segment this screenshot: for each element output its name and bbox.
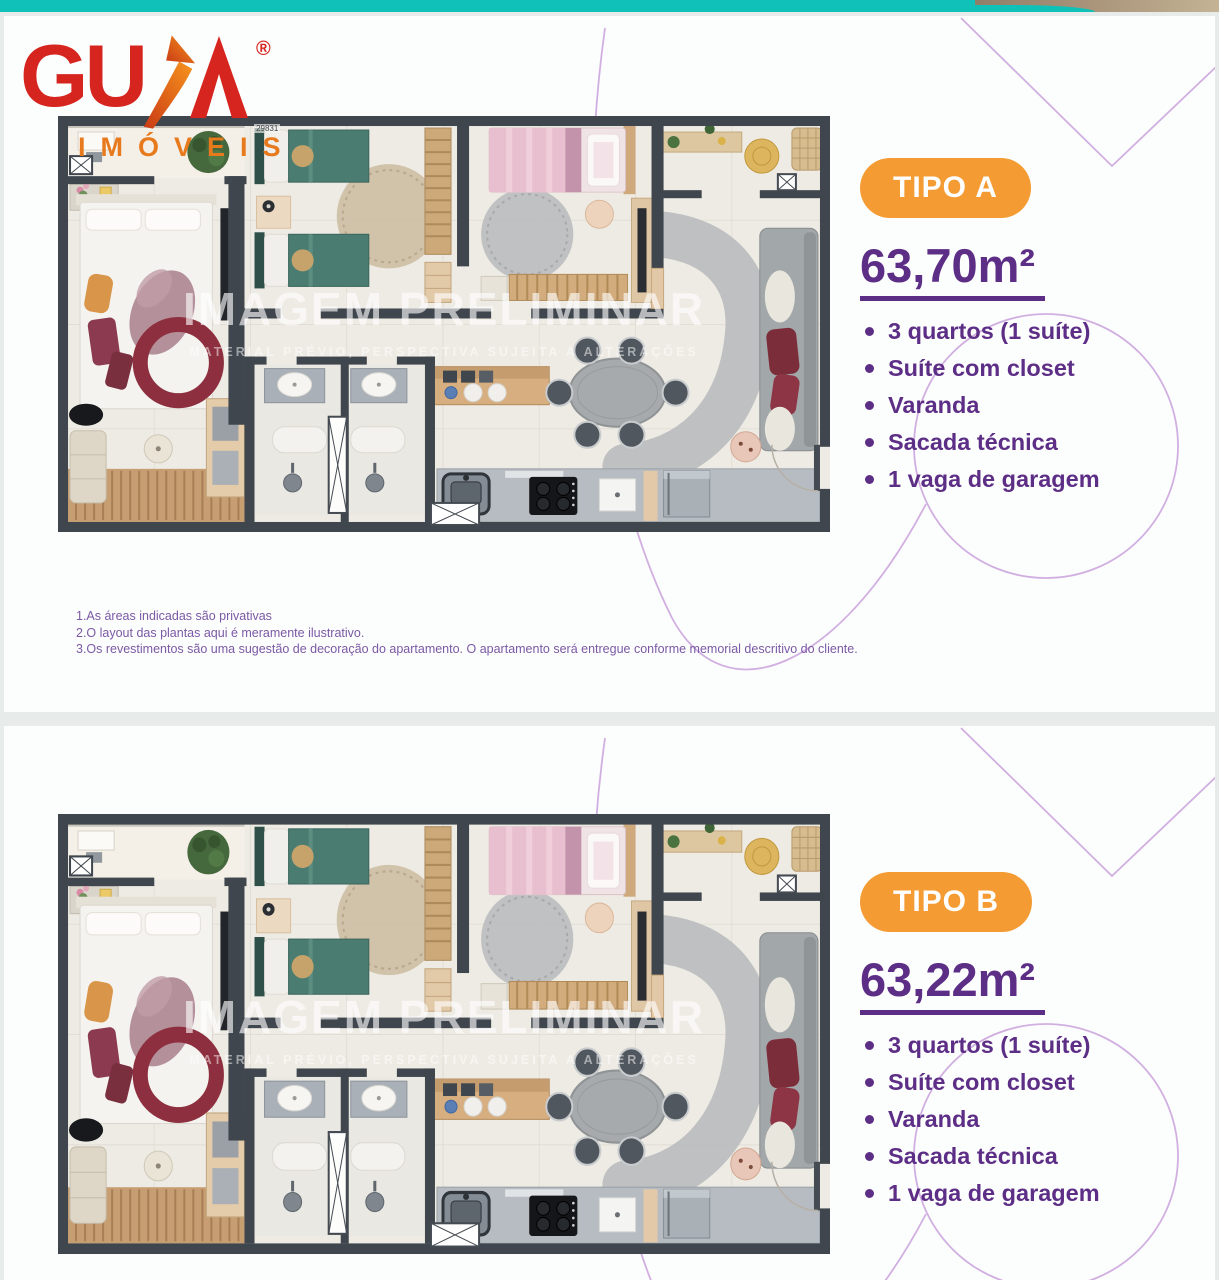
feature-item: 1 vaga de garagem [860,465,1210,493]
floorplan-illustration-b [58,814,830,1254]
master-suite [69,885,228,1142]
varanda [68,822,244,879]
disclaimer-line-1: 1.As áreas indicadas são privativas [76,608,858,625]
area-value-a: 63,70m² [860,238,1045,301]
teal-wave-shape [975,5,1095,12]
top-accent-bar [0,0,1219,12]
info-panel-tipo-b: TIPO B 63,22m² 3 quartos (1 suíte) Suíte… [860,872,1210,1216]
disclaimer-line-2: 2.O layout das plantas aqui é meramente … [76,625,858,642]
area-value-b: 63,22m² [860,952,1045,1015]
logo-subtitle: IMÓVEIS [78,132,296,163]
section-tipo-b: IMAGEM PRELIMINAR MATERIAL PRÉVIO, PERSP… [4,726,1215,1280]
chevron-line [961,728,1215,876]
feature-item: Varanda [860,391,1210,419]
logo-wordmark: GU ® [20,34,296,130]
registered-mark: ® [256,38,271,61]
feature-item: Suíte com closet [860,1068,1210,1096]
disclaimer-line-3: 3.Os revestimentos são uma sugestão de d… [76,641,858,658]
floorplan-illustration-a [58,116,830,532]
top-right-photo-fragment [975,0,1219,12]
info-panel-tipo-a: TIPO A 63,70m² 3 quartos (1 suíte) Suíte… [860,158,1210,502]
type-badge-a: TIPO A [860,158,1031,218]
feature-item: Suíte com closet [860,354,1210,382]
feature-item: 3 quartos (1 suíte) [860,317,1210,345]
flyer-page: { "page": { "top_bar_color": "#0fc1b8", … [0,0,1219,1280]
floorplan-tipo-a: 29831 IMAGEM PRELIMINAR MATERIAL PRÉVIO,… [58,116,830,532]
floorplan-tipo-b: IMAGEM PRELIMINAR MATERIAL PRÉVIO, PERSP… [58,814,830,1254]
feature-list-a: 3 quartos (1 suíte) Suíte com closet Var… [860,317,1210,493]
floorplan-svg [58,116,830,532]
feature-item: 3 quartos (1 suíte) [860,1031,1210,1059]
floorplan-svg [58,814,830,1254]
disclaimer: 1.As áreas indicadas são privativas 2.O … [76,608,858,658]
feature-list-b: 3 quartos (1 suíte) Suíte com closet Var… [860,1031,1210,1207]
type-badge-b: TIPO B [860,872,1032,932]
feature-item: Sacada técnica [860,1142,1210,1170]
feature-item: Sacada técnica [860,428,1210,456]
chevron-line [961,18,1215,166]
feature-item: Varanda [860,1105,1210,1133]
logo-letter-a-glyph [188,34,250,120]
logo-text-gu: GU [20,34,144,118]
section-tipo-a: GU ® IMÓVEIS [4,16,1215,712]
master-suite [69,183,228,426]
brand-logo: GU ® IMÓVEIS [20,34,296,163]
feature-item: 1 vaga de garagem [860,1179,1210,1207]
